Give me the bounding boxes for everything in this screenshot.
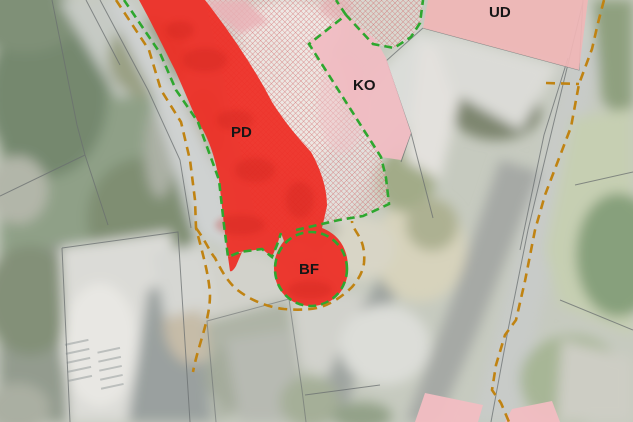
svg-text:PD: PD [231,124,252,141]
svg-text:BF: BF [299,261,319,278]
svg-text:KO: KO [353,77,376,94]
svg-text:UD: UD [489,4,511,21]
